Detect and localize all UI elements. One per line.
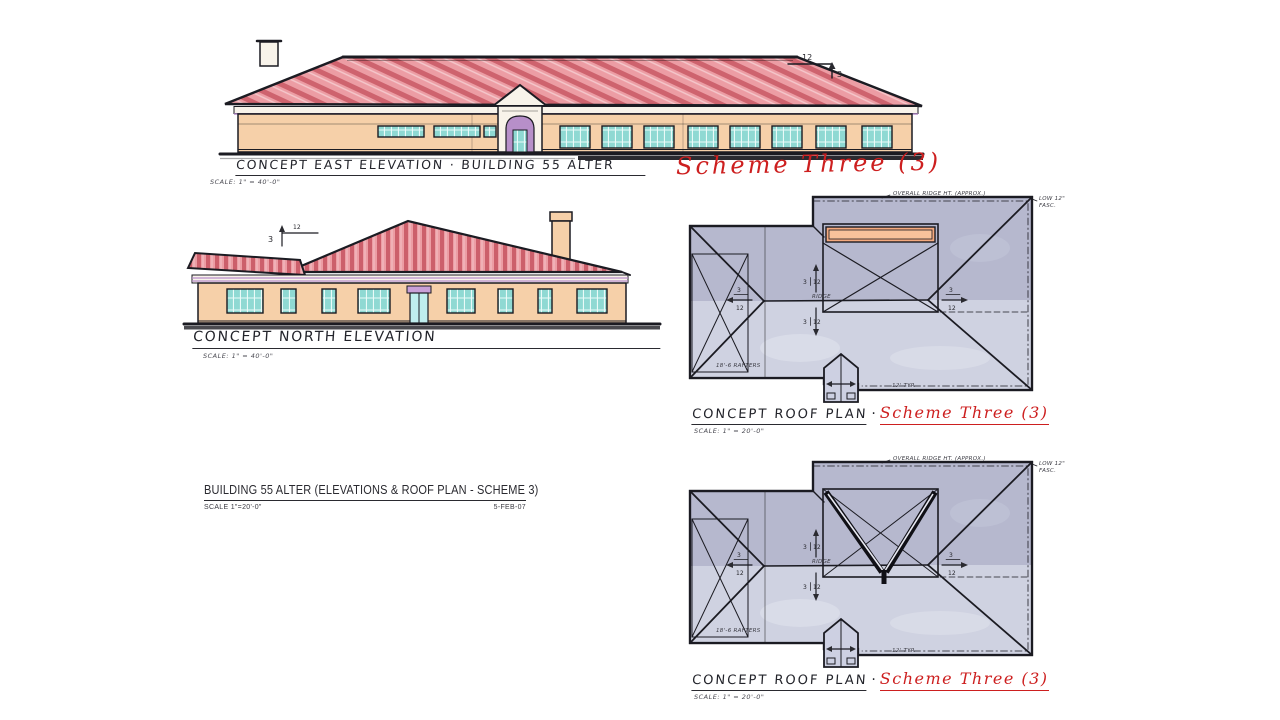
roof-outline	[690, 197, 1032, 390]
slope-label: 3	[803, 319, 807, 326]
roof-plan-top-drawing: 3 12 3 12 3 12 3 12 RIDGE OVERALL RIDGE …	[680, 188, 1080, 416]
rafters-note: 18'-6 RAFTERS	[716, 363, 761, 369]
pitch-run-label: 12	[802, 53, 812, 62]
title-underline	[204, 500, 526, 501]
scheme-label: Scheme Three (3)	[880, 669, 1049, 691]
low-fascia-note: FASC.	[1039, 203, 1056, 209]
rafters-note: 18'-6 RAFTERS	[716, 628, 761, 634]
slope-label: 3	[803, 544, 807, 551]
pitch-indicator: 3 12	[268, 224, 318, 246]
sheet-date: 5-FEB-07	[494, 504, 526, 511]
slope-label: 3	[803, 279, 807, 286]
title-separator: ·	[871, 406, 875, 422]
typical-note: 12' TYP.	[892, 648, 916, 654]
hip-roof	[287, 221, 630, 275]
roof-outline	[690, 462, 1032, 655]
pitch-rise-label: 3	[837, 70, 842, 79]
cornice-band	[234, 107, 918, 115]
slope-label: 12	[813, 279, 821, 286]
cornice-band	[192, 275, 628, 283]
north-elevation-title: CONCEPT NORTH ELEVATION	[192, 329, 661, 349]
slope-label: 3	[737, 552, 741, 559]
roof-plan-bottom-scale: SCALE: 1" = 20'-0"	[694, 693, 764, 701]
typical-note: 12' TYP.	[892, 383, 916, 389]
east-elevation-drawing: 12 3	[210, 28, 925, 163]
windows-left	[378, 126, 496, 137]
slope-label: 3	[803, 584, 807, 591]
sheet-scale: SCALE 1"=20'-0"	[204, 504, 262, 511]
ridge-label: RIDGE	[812, 559, 831, 565]
slope-label: 12	[813, 544, 821, 551]
slope-label: 12	[813, 319, 821, 326]
chimney	[257, 41, 281, 66]
overall-ridge-note: OVERALL RIDGE HT. (APPROX.)	[893, 456, 986, 462]
low-wing-roof	[188, 253, 305, 275]
entry-door	[407, 286, 431, 323]
roof-plan-title-text: CONCEPT ROOF PLAN	[691, 673, 868, 691]
roof-plan-title-text: CONCEPT ROOF PLAN	[691, 407, 868, 425]
scheme-label-east: Scheme Three (3)	[676, 148, 942, 181]
north-elevation-scale: SCALE: 1" = 40'-0"	[203, 352, 273, 360]
slope-label: 12	[948, 570, 956, 577]
pitch-rise-label: 3	[268, 235, 273, 244]
slope-label: 12	[736, 570, 744, 577]
north-elevation-drawing: 3 12	[178, 208, 678, 333]
overall-ridge-note: OVERALL RIDGE HT. (APPROX.)	[893, 191, 986, 197]
drawing-sheet: 12 3 CONCEPT EAST ELEVATION · BUILDING 5…	[0, 0, 1280, 720]
east-elevation-title: CONCEPT EAST ELEVATION · BUILDING 55 ALT…	[235, 157, 646, 176]
slope-label: 12	[736, 305, 744, 312]
pitch-run-label: 12	[293, 224, 301, 231]
slope-label: 3	[949, 552, 953, 559]
low-fascia-note: LOW 12"	[1039, 196, 1065, 202]
ridge-label: RIDGE	[812, 294, 831, 300]
low-fascia-note: LOW 12"	[1039, 461, 1065, 467]
roof-plan-bottom-title: CONCEPT ROOF PLAN·Scheme Three (3)	[692, 669, 1049, 691]
slope-label: 12	[948, 305, 956, 312]
slope-label: 12	[813, 584, 821, 591]
title-block: BUILDING 55 ALTER (ELEVATIONS & ROOF PLA…	[204, 483, 526, 511]
roof-plan-bottom-drawing: 3 12 3 12 3 12 3 12 RIDGE OVERALL RIDGE …	[680, 453, 1080, 681]
roof-plan-top-title: CONCEPT ROOF PLAN·Scheme Three (3)	[692, 403, 1049, 425]
slope-label: 3	[949, 287, 953, 294]
slope-label: 3	[737, 287, 741, 294]
title-separator: ·	[871, 672, 875, 688]
scheme-label: Scheme Three (3)	[880, 403, 1049, 425]
east-elevation-scale: SCALE: 1" = 40'-0"	[210, 178, 280, 186]
roof-plan-top-scale: SCALE: 1" = 20'-0"	[694, 427, 764, 435]
sheet-title: BUILDING 55 ALTER (ELEVATIONS & ROOF PLA…	[204, 483, 487, 497]
low-fascia-note: FASC.	[1039, 468, 1056, 474]
